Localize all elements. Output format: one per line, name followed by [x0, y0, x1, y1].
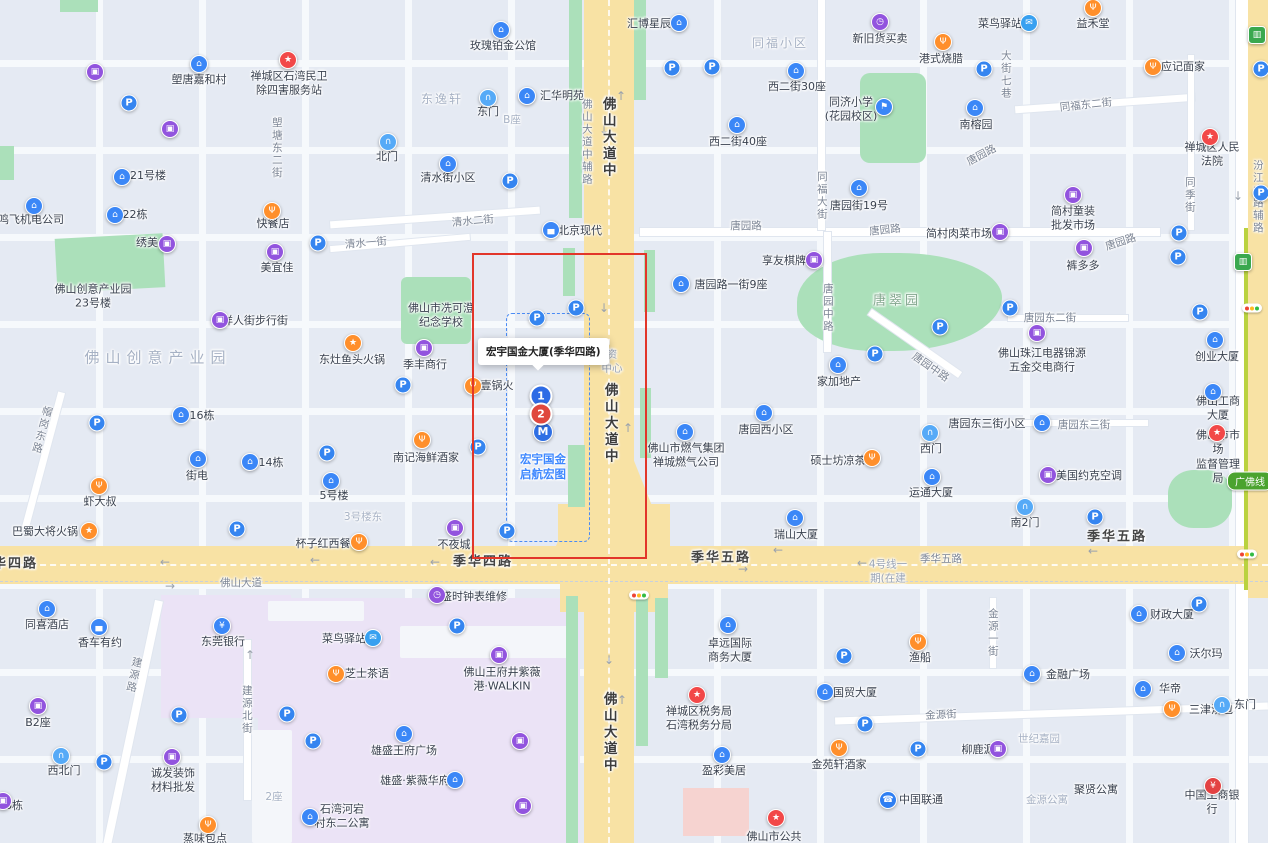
building-icon[interactable]: ⌂: [728, 116, 746, 134]
road-label: 唐园路: [965, 143, 999, 170]
restaurant-icon[interactable]: Ψ: [1084, 0, 1102, 17]
road-label: 清水二街: [451, 213, 494, 230]
parking-icon[interactable]: P: [89, 415, 106, 432]
pink-zone: [683, 788, 749, 836]
map-label[interactable]: 硕士坊凉茶: [811, 454, 866, 468]
map-label: 金源公寓: [1026, 794, 1068, 808]
parking-icon[interactable]: P: [449, 618, 466, 635]
map-label[interactable]: 唐园东三街小区: [949, 417, 1026, 431]
gate-icon[interactable]: ∩: [479, 89, 497, 107]
map-label[interactable]: 14栋: [259, 456, 284, 470]
green-area: [0, 146, 14, 180]
parking-icon[interactable]: P: [910, 741, 927, 758]
parking-icon[interactable]: P: [704, 59, 721, 76]
gate-icon[interactable]: ∩: [52, 747, 70, 765]
building-icon[interactable]: ⌂: [713, 746, 731, 764]
shop-icon[interactable]: ▣: [514, 797, 532, 815]
result-marker-2[interactable]: 2: [530, 403, 553, 426]
road-median: [566, 596, 578, 843]
map-label[interactable]: 西二街40座: [709, 135, 767, 149]
road-label: 塱塘东二街: [269, 117, 283, 180]
restaurant-icon[interactable]: Ψ: [1144, 58, 1162, 76]
map-label[interactable]: 绣美: [136, 236, 158, 250]
map-label[interactable]: 虾大叔: [84, 495, 117, 509]
map-label[interactable]: 北门: [376, 150, 398, 164]
map-label[interactable]: 创业大厦: [1195, 350, 1239, 364]
courier-icon[interactable]: ✉: [1020, 14, 1038, 32]
parking-icon[interactable]: P: [96, 754, 113, 771]
map-label[interactable]: 金融广场: [1046, 668, 1090, 682]
map-label[interactable]: 不夜城: [438, 538, 471, 552]
map-label[interactable]: 雄盛·紫薇华府: [380, 774, 450, 788]
map-label[interactable]: 中国联通: [899, 793, 943, 807]
building-icon[interactable]: ⌂: [755, 404, 773, 422]
restaurant-icon[interactable]: Ψ: [90, 477, 108, 495]
road-label: 季华五路: [1087, 530, 1147, 547]
map-label[interactable]: 菜鸟驿站: [322, 632, 366, 646]
map-label[interactable]: 芝士茶语: [345, 667, 389, 681]
gate-icon[interactable]: ∩: [1016, 498, 1034, 516]
parking-icon[interactable]: P: [310, 235, 327, 252]
map-label[interactable]: 佛山创意产业园 23号楼: [55, 283, 132, 312]
parking-icon[interactable]: P: [976, 61, 993, 78]
restaurant-icon[interactable]: Ψ: [327, 665, 345, 683]
map-label[interactable]: 菜鸟驿站: [978, 17, 1022, 31]
building-block: [400, 626, 568, 658]
map-label: 佛山创意产业园: [84, 348, 231, 368]
building-icon[interactable]: ⌂: [786, 509, 804, 527]
map-label: 唐翠园: [873, 294, 921, 311]
map-label[interactable]: 唐园路一街9座: [695, 278, 768, 292]
building-icon[interactable]: ⌂: [850, 179, 868, 197]
building-icon[interactable]: ⌂: [1206, 331, 1224, 349]
map-label[interactable]: 东莞银行: [201, 635, 245, 649]
road-label: 佛山大道中: [599, 692, 617, 775]
bank-icon[interactable]: ¥: [213, 617, 231, 635]
map-canvas[interactable]: 广佛线 玫瑰铂金公馆塱唐嘉和村汇华明苑东门北门清水街小区21号楼22栋鸣飞机电公…: [0, 0, 1268, 843]
road-label: 唐园东三街: [1058, 419, 1111, 433]
map-label: B座: [503, 114, 521, 128]
parking-icon[interactable]: P: [1192, 304, 1209, 321]
map-label: 东逸轩: [421, 92, 463, 108]
building-icon[interactable]: ⌂: [1134, 680, 1152, 698]
road-label: 唐园中路: [820, 283, 834, 333]
parking-icon[interactable]: P: [279, 706, 296, 723]
shop-icon[interactable]: ▣: [415, 339, 433, 357]
restaurant-icon[interactable]: Ψ: [934, 33, 952, 51]
shop-icon[interactable]: ▣: [266, 243, 284, 261]
restaurant-icon[interactable]: Ψ: [830, 739, 848, 757]
restaurant-icon[interactable]: Ψ: [263, 202, 281, 220]
road-label: 佛山大道中辅路: [579, 98, 593, 186]
road-median: [634, 0, 646, 100]
road-median: [655, 598, 668, 678]
building-icon[interactable]: ⌂: [38, 600, 56, 618]
building-icon[interactable]: ⌂: [492, 21, 510, 39]
lane-arrow-icon: ←: [773, 543, 783, 557]
lane-line: [0, 564, 1268, 566]
restaurant-icon[interactable]: Ψ: [350, 533, 368, 551]
map-label[interactable]: 国贸大厦: [833, 686, 877, 700]
parking-icon[interactable]: P: [171, 707, 188, 724]
map-label[interactable]: 西北门: [48, 764, 81, 778]
map-label[interactable]: 卓远国际 商务大厦: [708, 637, 752, 666]
map-label[interactable]: 汇华明苑: [540, 89, 584, 103]
map-label[interactable]: 华帝: [1159, 682, 1181, 696]
building-icon[interactable]: ⌂: [172, 406, 190, 424]
restaurant-icon[interactable]: Ψ: [413, 431, 431, 449]
map-label[interactable]: 禅城区石湾民卫 除四害服务站: [251, 70, 328, 99]
shop-icon[interactable]: ▣: [158, 235, 176, 253]
parking-icon[interactable]: P: [121, 95, 138, 112]
lane-arrow-icon: ↓: [604, 653, 614, 667]
road-label: 金源街: [925, 708, 957, 723]
parking-icon[interactable]: P: [836, 648, 853, 665]
restaurant-icon[interactable]: ★: [80, 522, 98, 540]
shop-icon[interactable]: ▣: [86, 63, 104, 81]
clock-icon[interactable]: ◷: [871, 13, 889, 31]
shop-icon[interactable]: ▣: [446, 519, 464, 537]
building-icon[interactable]: ⌂: [672, 275, 690, 293]
map-label[interactable]: 塱唐嘉和村: [172, 73, 227, 87]
road-label: 佛山大道中: [598, 97, 616, 180]
building-icon[interactable]: ⌂: [446, 771, 464, 789]
road-label: 同福大街: [814, 171, 828, 221]
lane-arrow-icon: ↑: [616, 89, 626, 103]
telecom-icon[interactable]: ☎: [879, 791, 897, 809]
metro-line: [1244, 228, 1248, 590]
gate-icon[interactable]: ∩: [379, 133, 397, 151]
building-icon[interactable]: ⌂: [518, 87, 536, 105]
building-icon[interactable]: ⌂: [189, 450, 207, 468]
parking-icon[interactable]: P: [1170, 249, 1187, 266]
shop-icon[interactable]: ▣: [1064, 186, 1082, 204]
restaurant-icon[interactable]: Ψ: [863, 449, 881, 467]
map-label[interactable]: 沃尔玛: [1190, 647, 1223, 661]
road: [330, 207, 540, 229]
map-label[interactable]: 唐园西小区: [739, 423, 794, 437]
road-label: 佛山大道: [220, 577, 262, 591]
parking-icon[interactable]: P: [305, 733, 322, 750]
map-label[interactable]: 香车有约: [78, 636, 122, 650]
shop-icon[interactable]: ▣: [161, 120, 179, 138]
lane-arrow-icon: ←: [430, 555, 440, 569]
government-icon[interactable]: ★: [279, 51, 297, 69]
map-label[interactable]: 佛山珠江电器锦源 五金交电商行: [998, 347, 1086, 376]
map-label[interactable]: 杯子红西餐: [296, 537, 351, 551]
map-label[interactable]: 诚发装饰 材料批发: [151, 767, 195, 796]
highlight-rect: [472, 253, 647, 559]
parking-icon[interactable]: P: [1171, 225, 1188, 242]
parking-icon[interactable]: P: [932, 319, 949, 336]
restaurant-icon[interactable]: ★: [344, 334, 362, 352]
building-icon[interactable]: ⌂: [1033, 414, 1051, 432]
restaurant-icon[interactable]: Ψ: [199, 816, 217, 834]
shop-icon[interactable]: ▣: [991, 223, 1009, 241]
map-label[interactable]: 美宜佳: [261, 261, 294, 275]
building-icon[interactable]: ⌂: [829, 356, 847, 374]
road-label: 季华四路: [0, 557, 38, 574]
car-dealer-icon[interactable]: ▄: [90, 618, 108, 636]
map-label[interactable]: 佛山市公共: [747, 830, 802, 843]
map-label[interactable]: 南榕园: [960, 118, 993, 132]
map-label[interactable]: 南记海鲜酒家: [393, 451, 459, 465]
shop-icon[interactable]: ▣: [511, 732, 529, 750]
government-icon[interactable]: ★: [688, 686, 706, 704]
clock-icon[interactable]: ◷: [428, 586, 446, 604]
building-icon[interactable]: ⌂: [719, 616, 737, 634]
map-label[interactable]: 洋人街步行街: [222, 314, 288, 328]
government-icon[interactable]: ★: [1208, 424, 1226, 442]
road-label: 清水一街: [344, 235, 387, 252]
shop-icon[interactable]: ▣: [163, 748, 181, 766]
road-median: [636, 596, 648, 746]
lane-arrow-icon: ←: [310, 553, 320, 567]
building-icon[interactable]: ⌂: [190, 55, 208, 73]
road-label: 季华五路: [920, 553, 962, 567]
map-label[interactable]: 新旧货买卖: [853, 32, 908, 46]
map-label[interactable]: 禅城区税务局 石湾税务分局: [666, 705, 732, 734]
building-icon[interactable]: ⌂: [113, 168, 131, 186]
parking-icon[interactable]: P: [319, 445, 336, 462]
shop-icon[interactable]: ▣: [1075, 239, 1093, 257]
courier-icon[interactable]: ✉: [364, 629, 382, 647]
bank-icon[interactable]: ¥: [1204, 777, 1222, 795]
parking-icon[interactable]: P: [1087, 509, 1104, 526]
map-label[interactable]: 益禾堂: [1077, 17, 1110, 31]
map-label[interactable]: 街电: [186, 469, 208, 483]
traffic-light-icon: [1237, 550, 1257, 559]
parking-icon[interactable]: P: [1253, 185, 1268, 202]
map-label: 2座: [265, 791, 282, 805]
map-label[interactable]: 财政大厦: [1150, 608, 1194, 622]
restaurant-icon[interactable]: Ψ: [909, 633, 927, 651]
map-label: 世纪嘉园: [1018, 733, 1060, 747]
map-label[interactable]: 北京现代: [558, 224, 602, 238]
parking-icon[interactable]: P: [395, 377, 412, 394]
building-icon[interactable]: ⌂: [676, 423, 694, 441]
lane-arrow-icon: ←: [160, 555, 170, 569]
car-dealer-icon[interactable]: ▄: [542, 221, 560, 239]
poi-tooltip[interactable]: 宏宇国金大厦(季华四路): [478, 338, 609, 365]
map-label[interactable]: 佛山王府井紫薇 港·WALKIN: [464, 666, 541, 695]
map-label[interactable]: 西门: [920, 442, 942, 456]
map-label[interactable]: 21号楼: [130, 169, 166, 183]
road-label: 同季街: [1182, 176, 1196, 214]
shop-icon[interactable]: ▣: [1028, 324, 1046, 342]
bus-stop-icon[interactable]: ▥: [1234, 253, 1252, 271]
map-label[interactable]: 5号楼: [320, 489, 349, 503]
map-label[interactable]: 石湾河宕 村东二公寓: [315, 803, 370, 832]
map-label[interactable]: 佛山市燃气集团 禅城燃气公司: [648, 442, 725, 471]
lane-arrow-icon: ↑: [245, 648, 255, 662]
building-icon[interactable]: ⌂: [1204, 383, 1222, 401]
parking-icon[interactable]: P: [664, 60, 681, 77]
parking-icon[interactable]: P: [1191, 596, 1208, 613]
building-icon[interactable]: ⌂: [395, 725, 413, 743]
map-label[interactable]: 汇博星辰: [627, 17, 671, 31]
map-label[interactable]: 16栋: [190, 409, 215, 423]
parking-icon[interactable]: P: [502, 173, 519, 190]
map-label[interactable]: 22栋: [123, 208, 148, 222]
map-label[interactable]: 唐园街19号: [830, 199, 888, 213]
building-block: [268, 601, 364, 621]
shop-icon[interactable]: ▣: [211, 311, 229, 329]
map-label[interactable]: 简村肉菜市场: [926, 227, 992, 241]
road-label: 唐园路: [869, 223, 902, 240]
government-icon[interactable]: ★: [767, 809, 785, 827]
map-label[interactable]: 简村童装 批发市场: [1051, 205, 1095, 234]
shop-icon[interactable]: ▣: [490, 646, 508, 664]
road-label: 唐园路: [730, 220, 762, 234]
map-label[interactable]: 享友棋牌: [762, 254, 806, 268]
road-label: 季华五路: [691, 551, 751, 568]
fenjiang-road: [1248, 0, 1268, 598]
map-label[interactable]: 南2门: [1011, 516, 1040, 530]
shop-icon[interactable]: ▣: [989, 740, 1007, 758]
map-label[interactable]: 金苑轩酒家: [812, 758, 867, 772]
road-label: 唐园东二街: [1024, 312, 1077, 326]
building-icon[interactable]: ⌂: [670, 14, 688, 32]
school-icon[interactable]: ⚑: [875, 98, 893, 116]
map-label[interactable]: 同济小学 (花园校区): [825, 96, 878, 125]
building-icon[interactable]: ⌂: [816, 683, 834, 701]
shop-icon[interactable]: ▣: [805, 251, 823, 269]
map-label[interactable]: 裤多多: [1067, 259, 1100, 273]
road-label: 建源北街: [239, 685, 253, 735]
building-icon[interactable]: ⌂: [241, 453, 259, 471]
map-label[interactable]: 盛时钟表维修: [441, 590, 507, 604]
building-icon[interactable]: ⌂: [322, 472, 340, 490]
road-label: 大街七巷: [998, 50, 1012, 100]
shop-icon[interactable]: ▣: [29, 697, 47, 715]
building-icon[interactable]: ⌂: [966, 99, 984, 117]
map-label[interactable]: 运通大厦: [909, 486, 953, 500]
traffic-light-icon: [629, 591, 649, 600]
lane-arrow-icon: ↓: [1233, 189, 1243, 203]
map-label[interactable]: 美国约克空调: [1056, 469, 1122, 483]
gate-icon[interactable]: ∩: [1213, 696, 1231, 714]
map-label[interactable]: 应记面家: [1161, 60, 1205, 74]
map-label[interactable]: 港式烧腊: [919, 52, 963, 66]
lane-arrow-icon: ←: [857, 556, 867, 570]
map-label[interactable]: 季丰商行: [403, 358, 447, 372]
map-label: 4号线一 期(在建: [869, 558, 907, 585]
lane-arrow-icon: ↑: [617, 693, 627, 707]
building-icon[interactable]: ⌂: [439, 155, 457, 173]
building-icon[interactable]: ⌂: [25, 197, 43, 215]
building-icon[interactable]: ⌂: [301, 808, 319, 826]
road-label: 同福东二街: [1059, 96, 1113, 115]
green-area: [60, 0, 98, 12]
lane-arrow-icon: →: [165, 579, 175, 593]
restaurant-icon[interactable]: Ψ: [1163, 700, 1181, 718]
map-label[interactable]: 西二街30座: [768, 80, 826, 94]
gate-icon[interactable]: ∩: [921, 424, 939, 442]
map-label[interactable]: 雄盛王府广场: [371, 744, 437, 758]
lane-line: [0, 581, 1268, 582]
building-icon[interactable]: ⌂: [787, 62, 805, 80]
parking-icon[interactable]: P: [1002, 300, 1019, 317]
map-label[interactable]: 聚贤公寓: [1074, 783, 1118, 797]
map-label[interactable]: 佛山市冼可澄 纪念学校: [408, 302, 474, 331]
map-label[interactable]: 玫瑰铂金公馆: [470, 39, 536, 53]
map-label[interactable]: 渔船: [909, 651, 931, 665]
map-label[interactable]: 东灶鱼头火锅: [319, 353, 385, 367]
map-label: 3号楼东: [344, 511, 382, 525]
metro-line-badge: 广佛线: [1227, 472, 1268, 491]
map-label[interactable]: 东门: [1234, 698, 1256, 712]
map-label[interactable]: 瑞山大厦: [774, 528, 818, 542]
parking-icon[interactable]: P: [1253, 61, 1268, 78]
building-block: [252, 730, 292, 843]
map-label[interactable]: 鸣飞机电公司: [0, 213, 64, 227]
building-icon[interactable]: ⌂: [1023, 665, 1041, 683]
map-label[interactable]: 巴蜀大将火锅: [12, 525, 78, 539]
bus-stop-icon[interactable]: ▥: [1248, 26, 1266, 44]
parking-icon[interactable]: P: [857, 716, 874, 733]
shop-icon[interactable]: ▣: [1039, 466, 1057, 484]
map-label: 同福小区: [752, 36, 808, 52]
traffic-light-icon: [1242, 304, 1262, 313]
map-label[interactable]: 同喜酒店: [25, 618, 69, 632]
map-label[interactable]: B2座: [25, 716, 51, 730]
map-label[interactable]: 家加地产: [817, 375, 861, 389]
parking-icon[interactable]: P: [229, 521, 246, 538]
building-icon[interactable]: ⌂: [923, 468, 941, 486]
parking-icon[interactable]: P: [867, 346, 884, 363]
building-icon[interactable]: ⌂: [1130, 605, 1148, 623]
building-icon[interactable]: ⌂: [106, 206, 124, 224]
map-label[interactable]: 盈彩美居: [702, 764, 746, 778]
government-icon[interactable]: ★: [1201, 128, 1219, 146]
building-icon[interactable]: ⌂: [1168, 644, 1186, 662]
road-label: 金源一街: [985, 608, 999, 658]
